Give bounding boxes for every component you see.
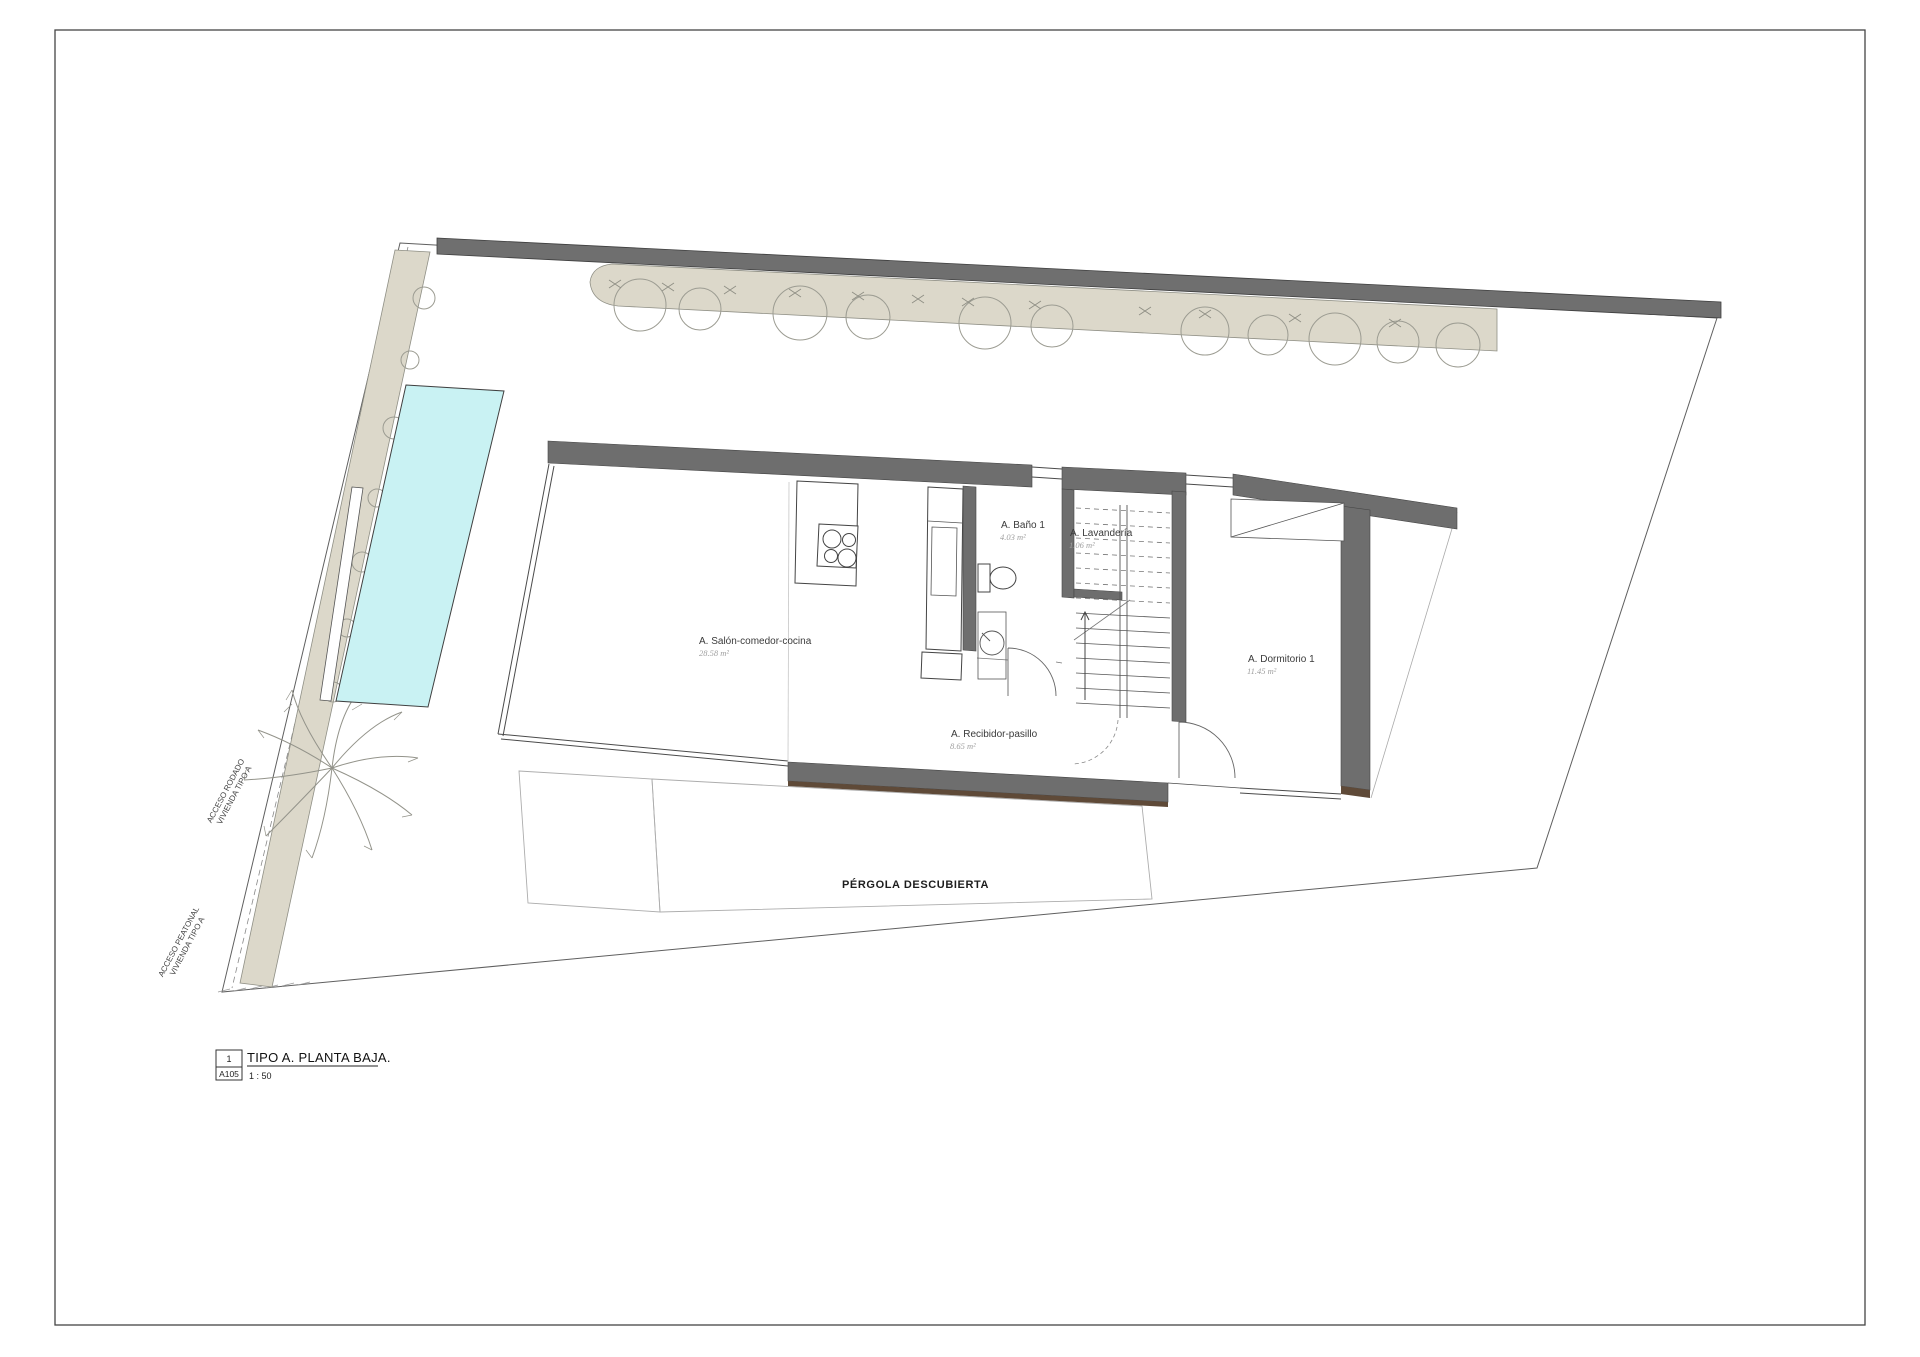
area-bedroom: 11.45 m² xyxy=(1247,666,1277,676)
window-living-south xyxy=(498,734,788,766)
bath-counter xyxy=(978,612,1006,679)
wall-kitchen-bath xyxy=(963,486,976,651)
area-laundry: 1.06 m² xyxy=(1069,540,1095,550)
hall-door-swing-dashed xyxy=(1072,720,1118,764)
label-laundry: A. Lavandería xyxy=(1070,528,1133,539)
area-hall: 8.65 m² xyxy=(950,741,976,751)
window-bath-north xyxy=(1032,467,1062,479)
wall-bedroom-east xyxy=(1341,506,1370,790)
threshold-line xyxy=(1168,783,1240,788)
label-living: A. Salón-comedor-cocina xyxy=(699,636,812,647)
detail-number: 1 xyxy=(226,1054,231,1064)
label-bedroom: A. Dormitorio 1 xyxy=(1248,654,1315,665)
bath-door-swing xyxy=(1008,648,1056,696)
wall-stair-east xyxy=(1172,491,1186,722)
label-pergola: PÉRGOLA DESCUBIERTA xyxy=(842,878,989,891)
view-title: TIPO A. PLANTA BAJA. xyxy=(247,1050,391,1065)
kitchen xyxy=(795,481,963,680)
window-hall-north xyxy=(1186,475,1233,487)
label-bath: A. Baño 1 xyxy=(1001,520,1045,531)
sheet-code: A105 xyxy=(219,1069,239,1079)
stair-treads-upper xyxy=(1076,508,1170,603)
garden-edge-line xyxy=(1371,512,1457,798)
drawing-sheet: A. Salón-comedor-cocina 28.58 m² A. Baño… xyxy=(0,0,1920,1357)
stair-direction-arrow xyxy=(1081,612,1089,700)
toilet-tank xyxy=(978,564,990,592)
wall-living-north xyxy=(548,441,1032,487)
entry-door-swing xyxy=(1179,722,1235,778)
palm-tree-icon xyxy=(244,690,418,858)
bathroom xyxy=(978,564,1016,679)
wardrobe xyxy=(1231,499,1344,541)
glazing-lines xyxy=(498,464,1341,799)
bath-south-line xyxy=(977,658,1062,663)
area-bath: 4.03 m² xyxy=(1000,532,1026,542)
wall-bath-north xyxy=(1062,467,1186,495)
window-living-west xyxy=(498,464,554,736)
kitchen-floor-line xyxy=(788,482,789,762)
kitchen-low-unit xyxy=(921,652,962,680)
house-walls xyxy=(548,441,1457,802)
view-scale: 1 : 50 xyxy=(249,1071,272,1081)
title-block: 1 A105 TIPO A. PLANTA BAJA. 1 : 50 xyxy=(216,1050,391,1081)
access-labels: ACCESO RODADO VIVIENDA TIPO A ACCESO PEA… xyxy=(157,757,255,982)
wall-laundry-south xyxy=(1074,589,1122,600)
label-hall: A. Recibidor-pasillo xyxy=(951,729,1038,740)
window-bedroom-south xyxy=(1240,788,1341,799)
stair-treads-lower xyxy=(1076,613,1170,708)
doors xyxy=(1008,648,1235,778)
faucet-icon xyxy=(982,633,990,641)
area-living: 28.58 m² xyxy=(699,648,729,658)
toilet-icon xyxy=(990,567,1016,589)
stair-break-line xyxy=(1074,600,1130,640)
floor-plan-canvas: A. Salón-comedor-cocina 28.58 m² A. Baño… xyxy=(0,0,1920,1357)
